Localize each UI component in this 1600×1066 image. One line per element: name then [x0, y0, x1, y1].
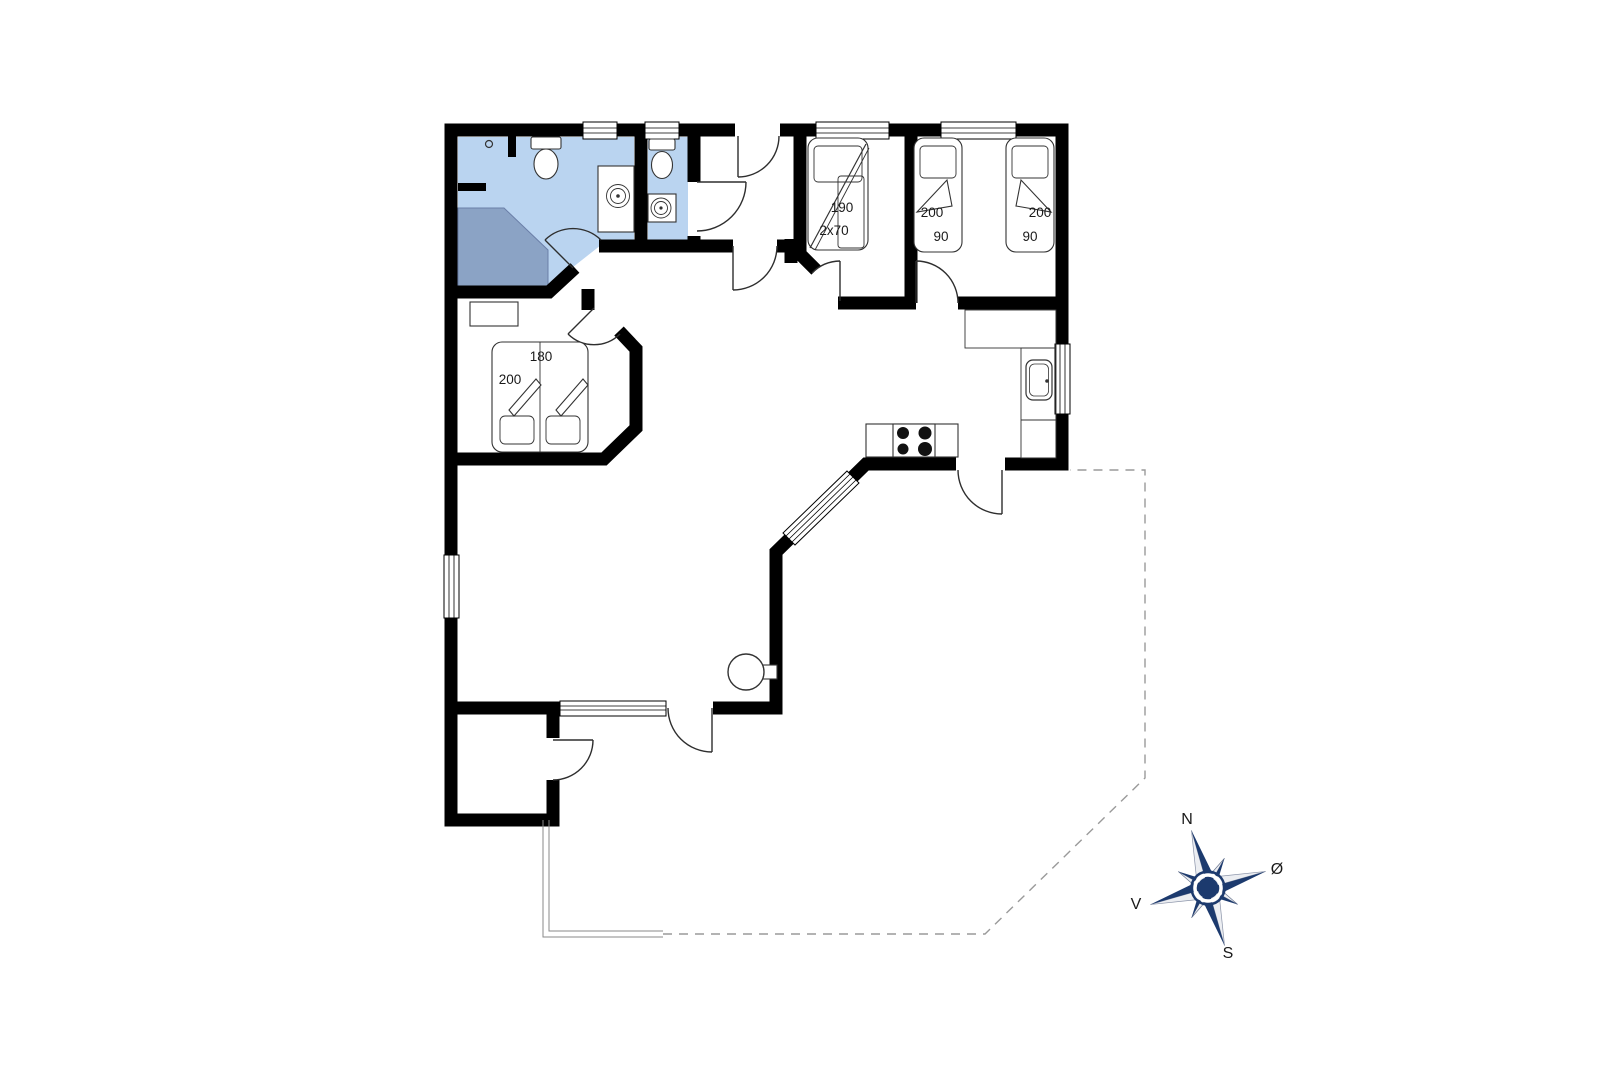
south-door-opening — [666, 699, 713, 717]
bathroom-counter — [598, 166, 634, 232]
toilet-room-floor — [648, 137, 688, 240]
window-bay-diagonal — [783, 471, 859, 545]
front-door-opening — [735, 121, 780, 139]
compass-label-south: S — [1223, 945, 1234, 962]
twin-room-door — [916, 261, 958, 303]
entrance-door-opening — [545, 738, 562, 780]
single-bed-right-length-label: 200 — [1029, 205, 1052, 220]
window-kitchen-right — [1055, 344, 1070, 414]
window-toilet — [645, 122, 679, 139]
single-bed-left-width-label: 90 — [933, 229, 948, 244]
single-bed-right: 200 90 — [1006, 138, 1054, 252]
terrace-edge-solid-outer — [543, 820, 663, 937]
wardrobe — [470, 302, 518, 326]
kitchen — [866, 310, 1056, 458]
toilet-door — [697, 182, 746, 231]
window-living-south — [560, 701, 666, 716]
bunk-bed: 190 2x70 — [808, 138, 869, 250]
compass-label-north: N — [1181, 811, 1193, 828]
floor-plan-page: 190 2x70 200 90 200 90 180 200 — [0, 0, 1600, 1066]
entrance-room-wall — [451, 708, 553, 820]
kitchen-sink-icon — [1026, 360, 1052, 400]
single-bed-left: 200 90 — [914, 138, 962, 252]
compass-rose: N Ø S V — [1131, 811, 1284, 962]
stove-icon — [893, 424, 935, 457]
single-bed-right-width-label: 90 — [1022, 229, 1037, 244]
kitchen-counter-top — [965, 310, 1056, 348]
double-bedroom-door — [568, 308, 620, 345]
compass-label-east: Ø — [1271, 861, 1283, 878]
window-twin-room — [941, 122, 1016, 139]
floor-plan-svg: 190 2x70 200 90 200 90 180 200 — [0, 0, 1600, 1066]
kitchen-door-opening — [956, 455, 1005, 473]
double-bed-width-label: 180 — [530, 349, 553, 364]
bunk-bed-length-label: 190 — [831, 200, 854, 215]
window-bathroom — [583, 122, 617, 139]
toilet-small — [649, 139, 675, 179]
compass-label-west: V — [1131, 896, 1142, 913]
kitchen-terrace-door — [958, 470, 1002, 514]
double-bed: 180 200 — [492, 342, 588, 452]
double-bed-length-label: 200 — [499, 372, 522, 387]
terrace-edge-solid-inner — [549, 820, 663, 931]
window-bunk-room — [816, 122, 889, 139]
front-door — [738, 136, 779, 177]
window-left-wall — [444, 555, 459, 618]
corridor-corner-wall — [777, 239, 791, 263]
single-bed-left-length-label: 200 — [921, 205, 944, 220]
bunk-bed-size-label: 2x70 — [819, 223, 848, 238]
hall-living-door — [733, 246, 777, 290]
